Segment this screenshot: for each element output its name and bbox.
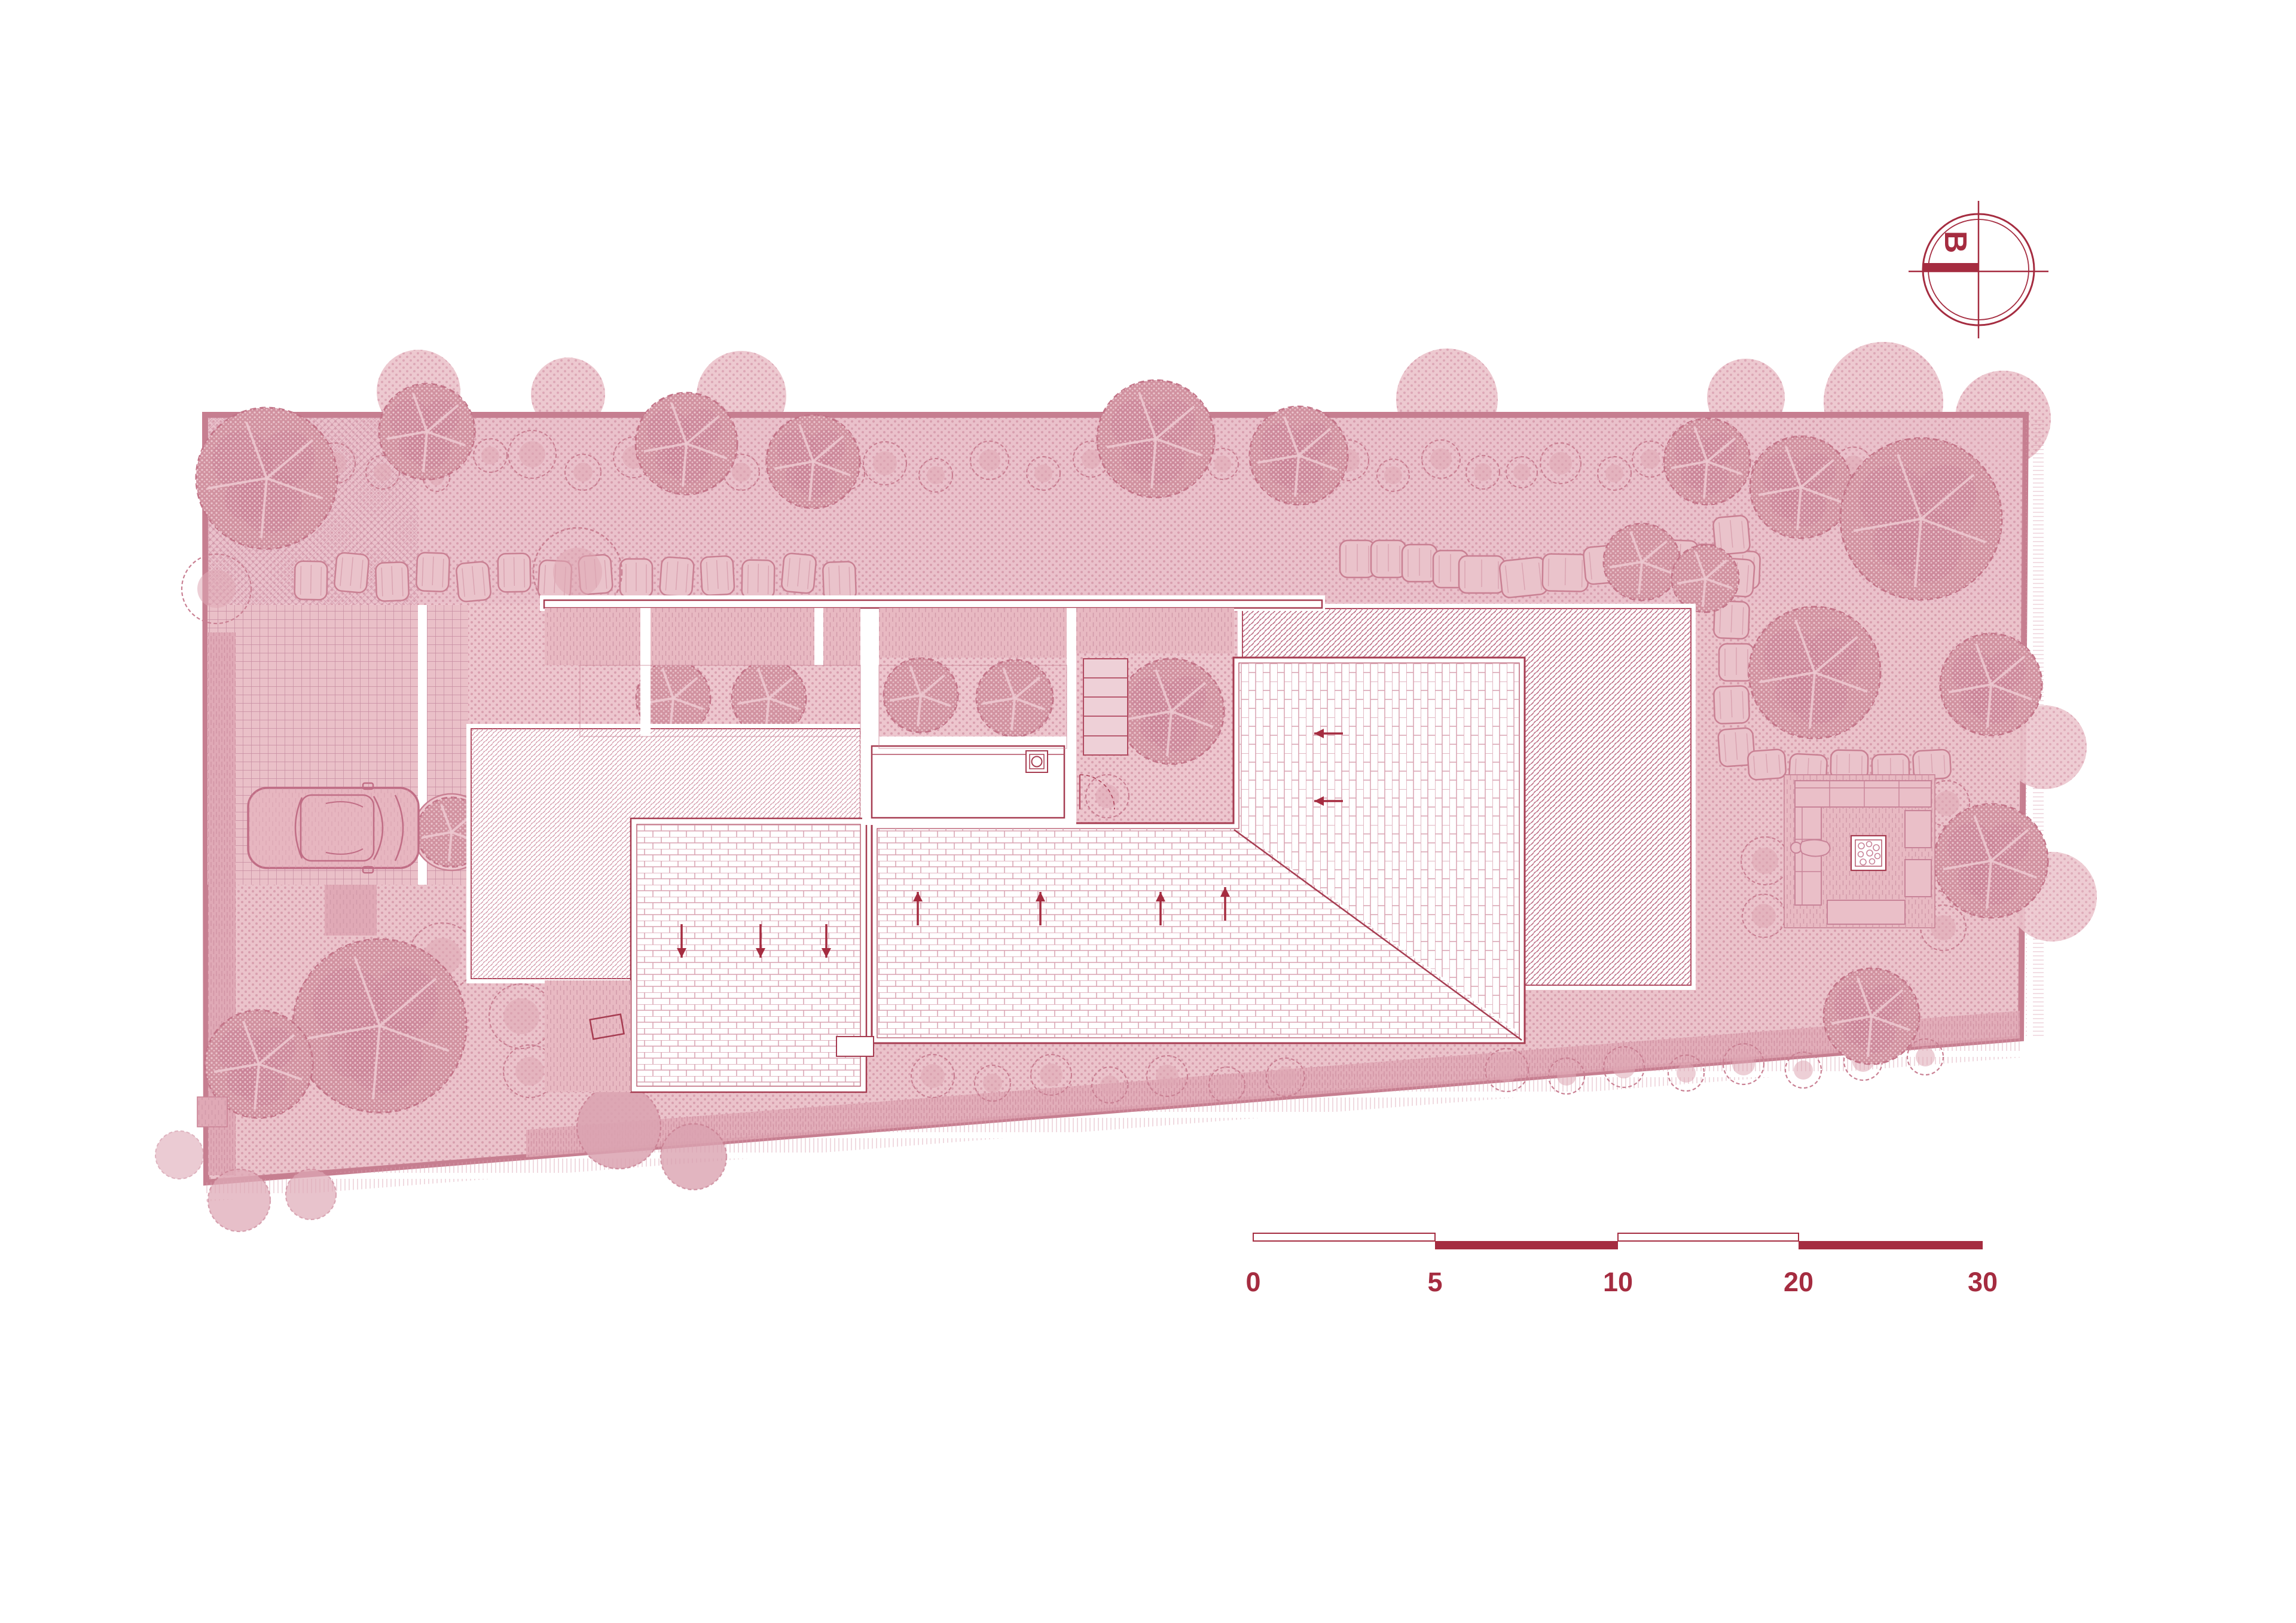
svg-text:5: 5 (1427, 1267, 1442, 1297)
svg-text:B: B (1938, 231, 1973, 253)
svg-text:20: 20 (1784, 1267, 1813, 1297)
svg-text:10: 10 (1603, 1267, 1633, 1297)
svg-text:30: 30 (1968, 1267, 1998, 1297)
svg-text:0: 0 (1245, 1267, 1260, 1297)
